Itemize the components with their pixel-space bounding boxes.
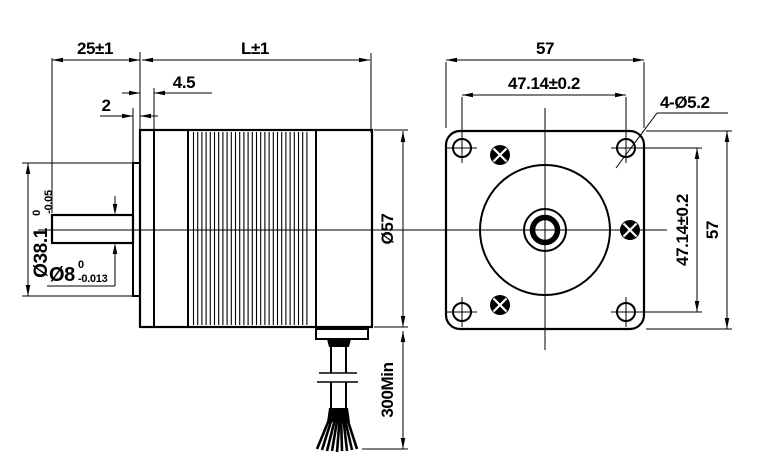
dim-text-front-plate-depth: 4.5 [173, 73, 195, 92]
dim-lead-length: 300Min [362, 331, 408, 449]
dim-text-shaft-diameter: Ø8 [49, 264, 75, 286]
dim-shaft-diameter: Ø8 0 -0.013 [47, 196, 117, 286]
dim-text-boss-tol-upper: 0 [31, 210, 43, 216]
mounting-hole-bottom-right [611, 297, 641, 327]
dim-text-body-diameter: Ø57 [378, 214, 397, 245]
dim-text-mounting-holes: 4-Ø5.2 [660, 93, 710, 112]
side-view: 25±1 L±1 4.5 2 [22, 39, 408, 452]
dim-text-boss-height: 2 [101, 96, 110, 115]
screw-top-left [490, 145, 510, 165]
dim-text-body-length: L±1 [241, 39, 269, 58]
mounting-hole-top-right [611, 133, 641, 163]
dim-text-lead-length: 300Min [378, 362, 397, 417]
cable-gland [327, 339, 351, 347]
front-view: 57 47.14±0.2 4-Ø5.2 47.14±0.2 [446, 39, 732, 350]
dim-text-frame-height: 57 [703, 221, 722, 239]
dim-text-hole-spacing-vertical: 47.14±0.2 [673, 194, 692, 266]
dim-text-frame-width: 57 [536, 39, 554, 58]
motor-dimension-drawing: 25±1 L±1 4.5 2 [0, 0, 757, 462]
shaft [52, 215, 133, 243]
stator-ribs [194, 132, 307, 325]
lead-wires-brush [317, 408, 357, 452]
lead-exit-block [316, 329, 368, 339]
screw-bottom-left [490, 295, 510, 315]
mounting-hole-bottom-left [447, 297, 477, 327]
screw-right-center [620, 220, 640, 240]
dim-text-hole-spacing-horizontal: 47.14±0.2 [508, 74, 580, 93]
dim-text-shaft-tol-lower: -0.013 [78, 273, 108, 285]
dim-hole-spacing-horizontal: 47.14±0.2 [462, 74, 626, 135]
dim-front-plate-depth: 4.5 [122, 73, 212, 130]
dim-body-diameter: Ø57 [374, 130, 408, 327]
dim-text-shaft-extension: 25±1 [77, 39, 113, 58]
dim-shaft-extension: 25±1 [52, 39, 140, 213]
dim-text-shaft-tol-upper: 0 [78, 259, 84, 271]
mounting-hole-top-left [447, 133, 477, 163]
drawing-canvas: 25±1 L±1 4.5 2 [0, 0, 757, 462]
dim-text-boss-tol-lower: -0.05 [43, 190, 55, 214]
